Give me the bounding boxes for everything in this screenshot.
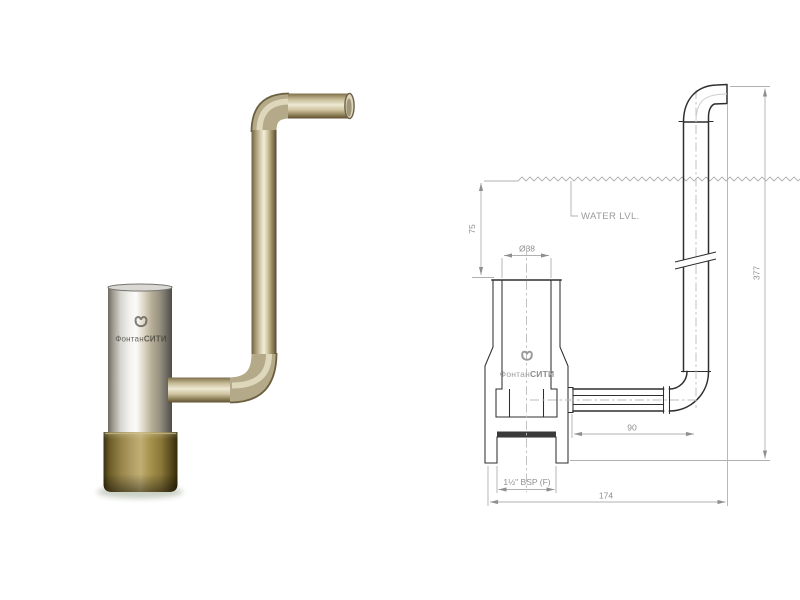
product-photo: ФонтанСИТИ xyxy=(0,0,420,600)
drawing-logo-text: ФонтанСИТИ xyxy=(500,369,555,379)
dim-thread-text: 1½" BSP (F) xyxy=(503,477,550,487)
fountain-city-logo-icon xyxy=(522,352,532,360)
riser-pipe xyxy=(675,85,727,409)
technical-drawing: WATER LVL. 75 Ø38 ФонтанСИТИ xyxy=(420,0,800,600)
dim-d38-text: Ø38 xyxy=(519,244,535,254)
water-level: WATER LVL. xyxy=(518,177,800,222)
nozzle-body-section: ФонтанСИТИ xyxy=(485,246,568,492)
photo-pipe xyxy=(168,93,354,402)
product-sheet: ФонтанСИТИ WATER LVL. 75 xyxy=(0,0,800,600)
dim-water-depth: 75 xyxy=(467,181,518,278)
photo-logo-text: ФонтанСИТИ xyxy=(115,335,167,344)
top-elbow xyxy=(684,85,728,123)
dim-377-text: 377 xyxy=(752,266,762,280)
dim-75-text: 75 xyxy=(467,224,477,234)
drawing-logo: ФонтанСИТИ xyxy=(500,352,555,379)
dim-90-text: 90 xyxy=(627,423,637,433)
pipe-open-end xyxy=(345,93,354,118)
water-level-label: WATER LVL. xyxy=(581,211,640,222)
photo-nozzle-body xyxy=(104,284,178,492)
dim-overall-width: 174 xyxy=(488,104,728,506)
dim-174-text: 174 xyxy=(599,491,613,501)
dim-pipe-offset: 90 xyxy=(572,414,694,438)
